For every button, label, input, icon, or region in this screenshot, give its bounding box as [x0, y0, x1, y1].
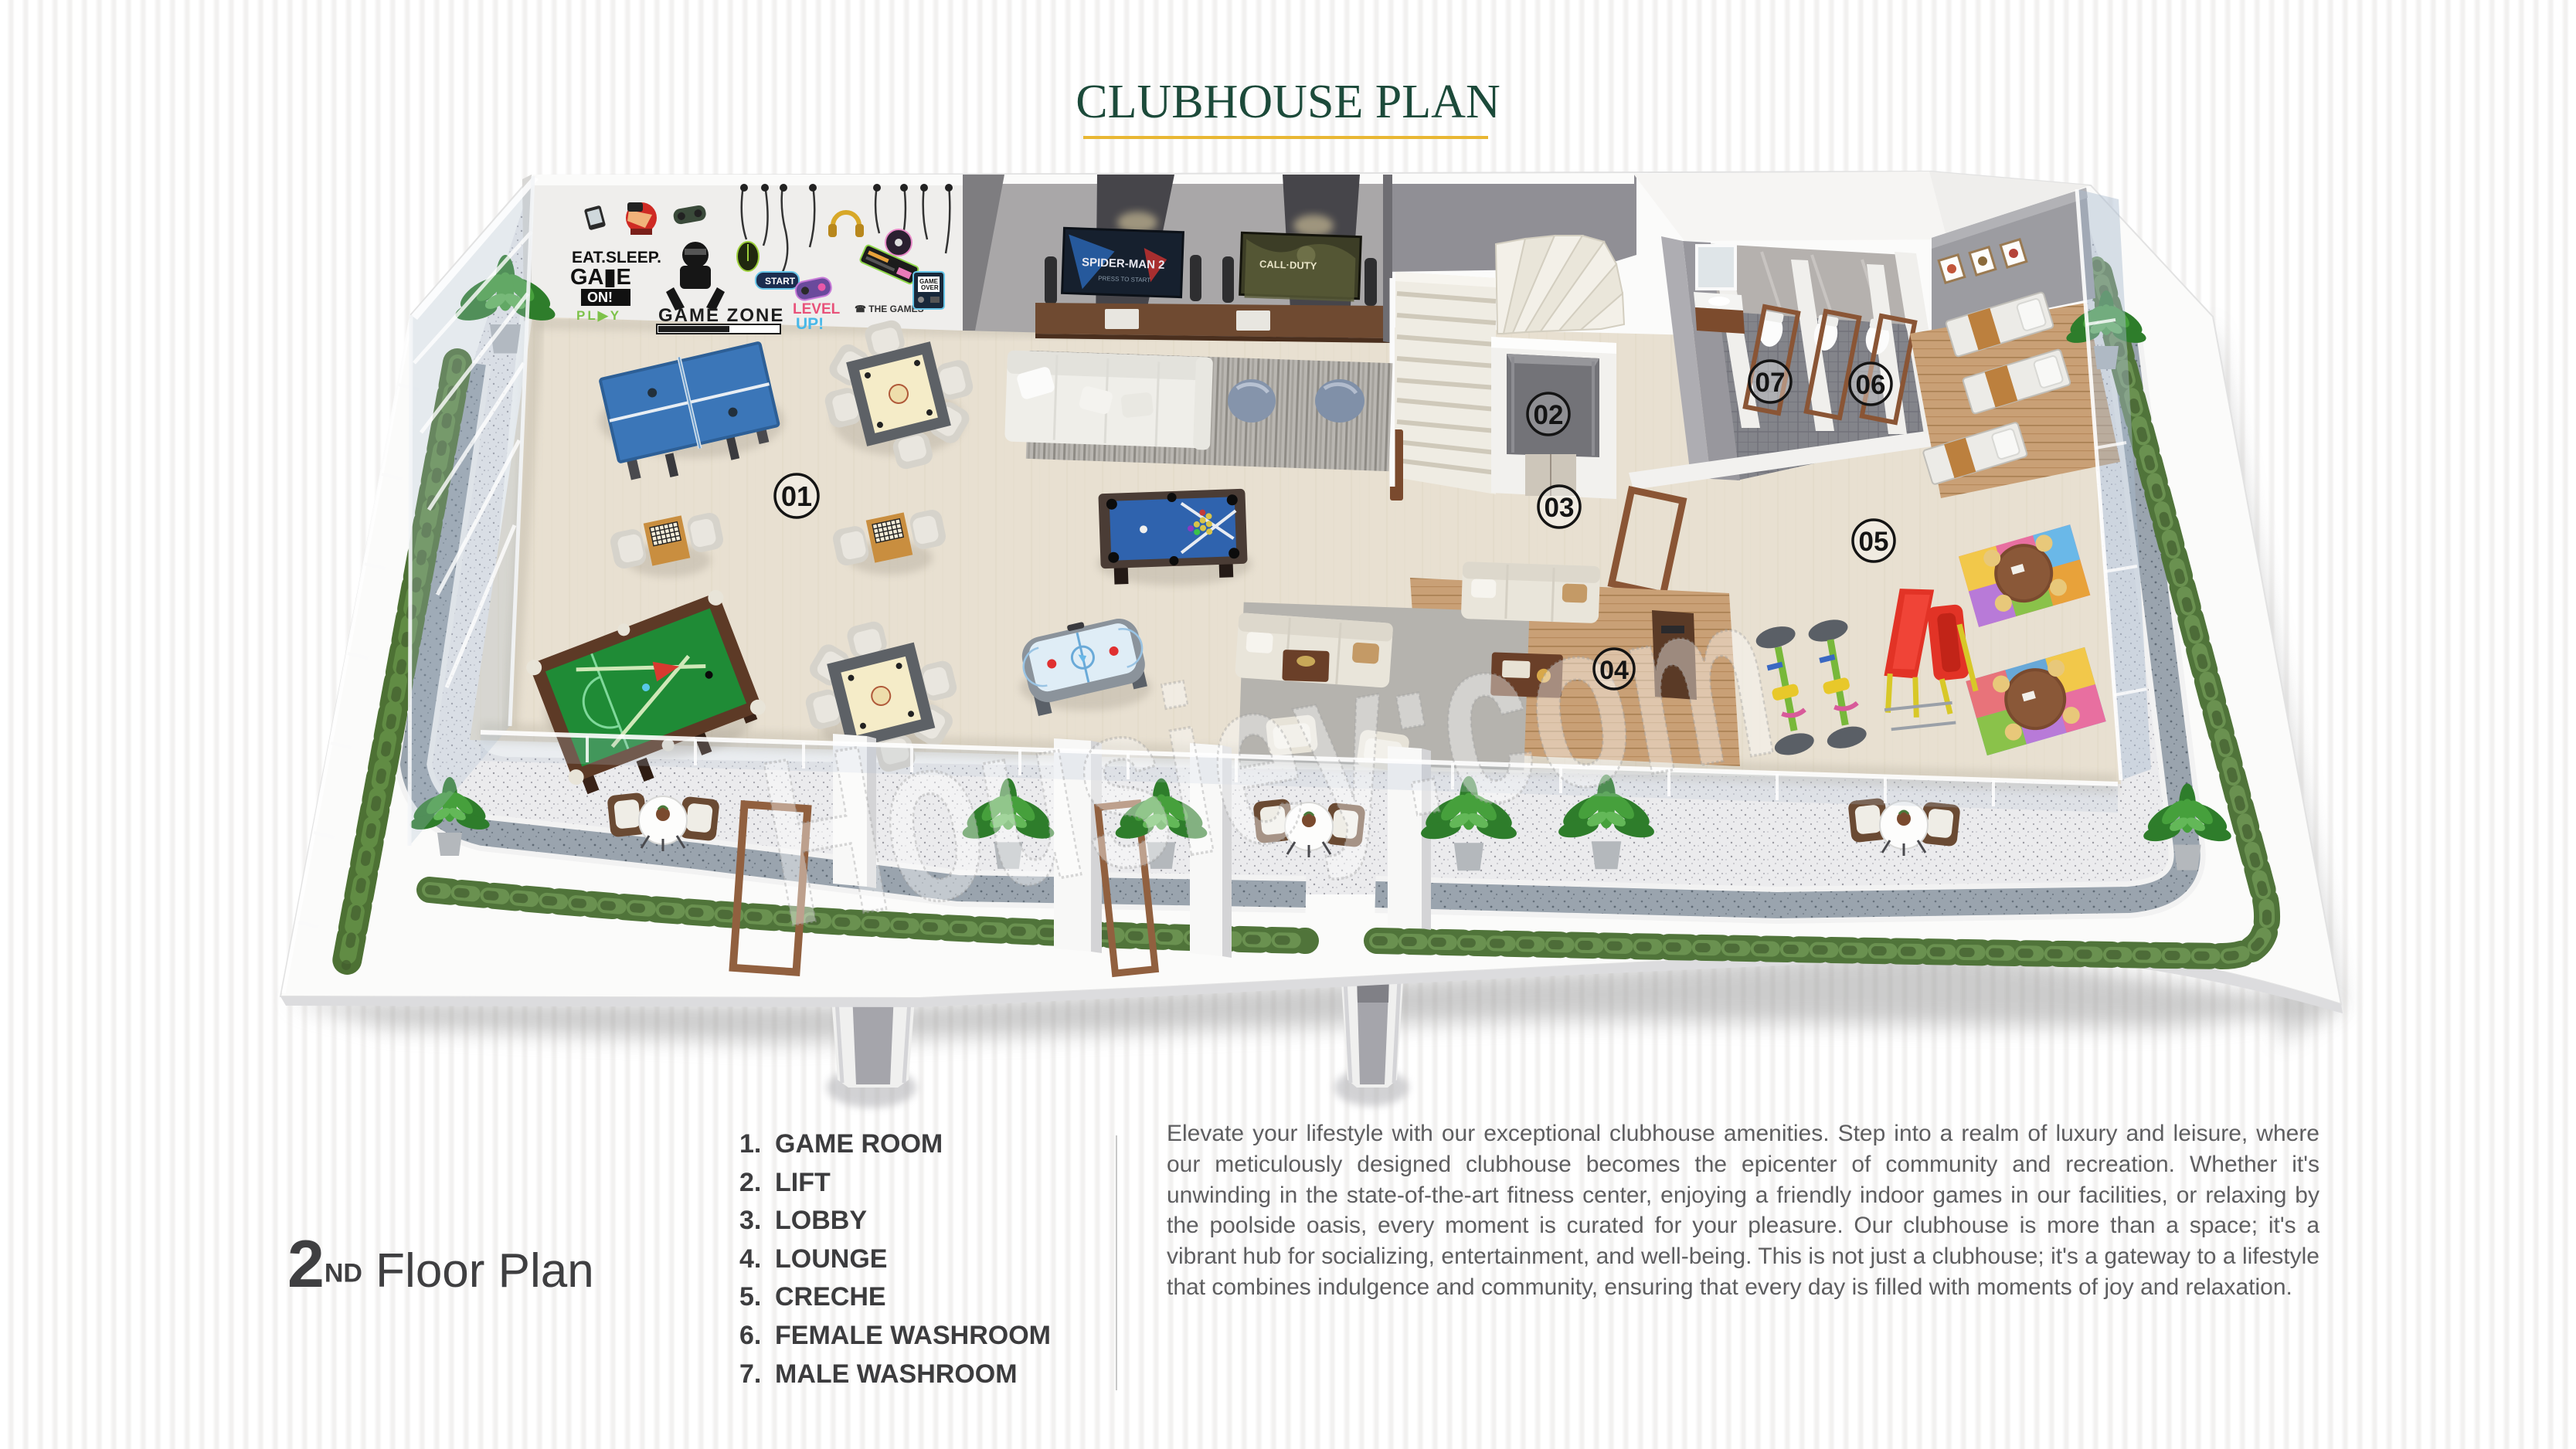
svg-text:EAT.SLEEP.: EAT.SLEEP. [572, 249, 661, 266]
svg-text:02: 02 [1534, 400, 1564, 430]
svg-text:PL▶Y: PL▶Y [576, 308, 621, 323]
svg-text:06: 06 [1856, 370, 1886, 400]
svg-text:CALL·DUTY: CALL·DUTY [1259, 258, 1317, 272]
svg-text:04: 04 [1599, 656, 1629, 685]
svg-text:OVER: OVER [921, 284, 939, 291]
svg-text:ON!: ON! [587, 290, 613, 305]
svg-text:03: 03 [1545, 493, 1575, 523]
svg-text:GAME ZONE: GAME ZONE [658, 305, 784, 326]
svg-text:05: 05 [1859, 527, 1889, 557]
svg-text:GA▮E: GA▮E [570, 265, 631, 290]
svg-text:UP!: UP! [796, 315, 824, 333]
svg-text:START: START [765, 276, 796, 287]
svg-text:01: 01 [781, 480, 812, 512]
svg-text:07: 07 [1755, 368, 1786, 398]
